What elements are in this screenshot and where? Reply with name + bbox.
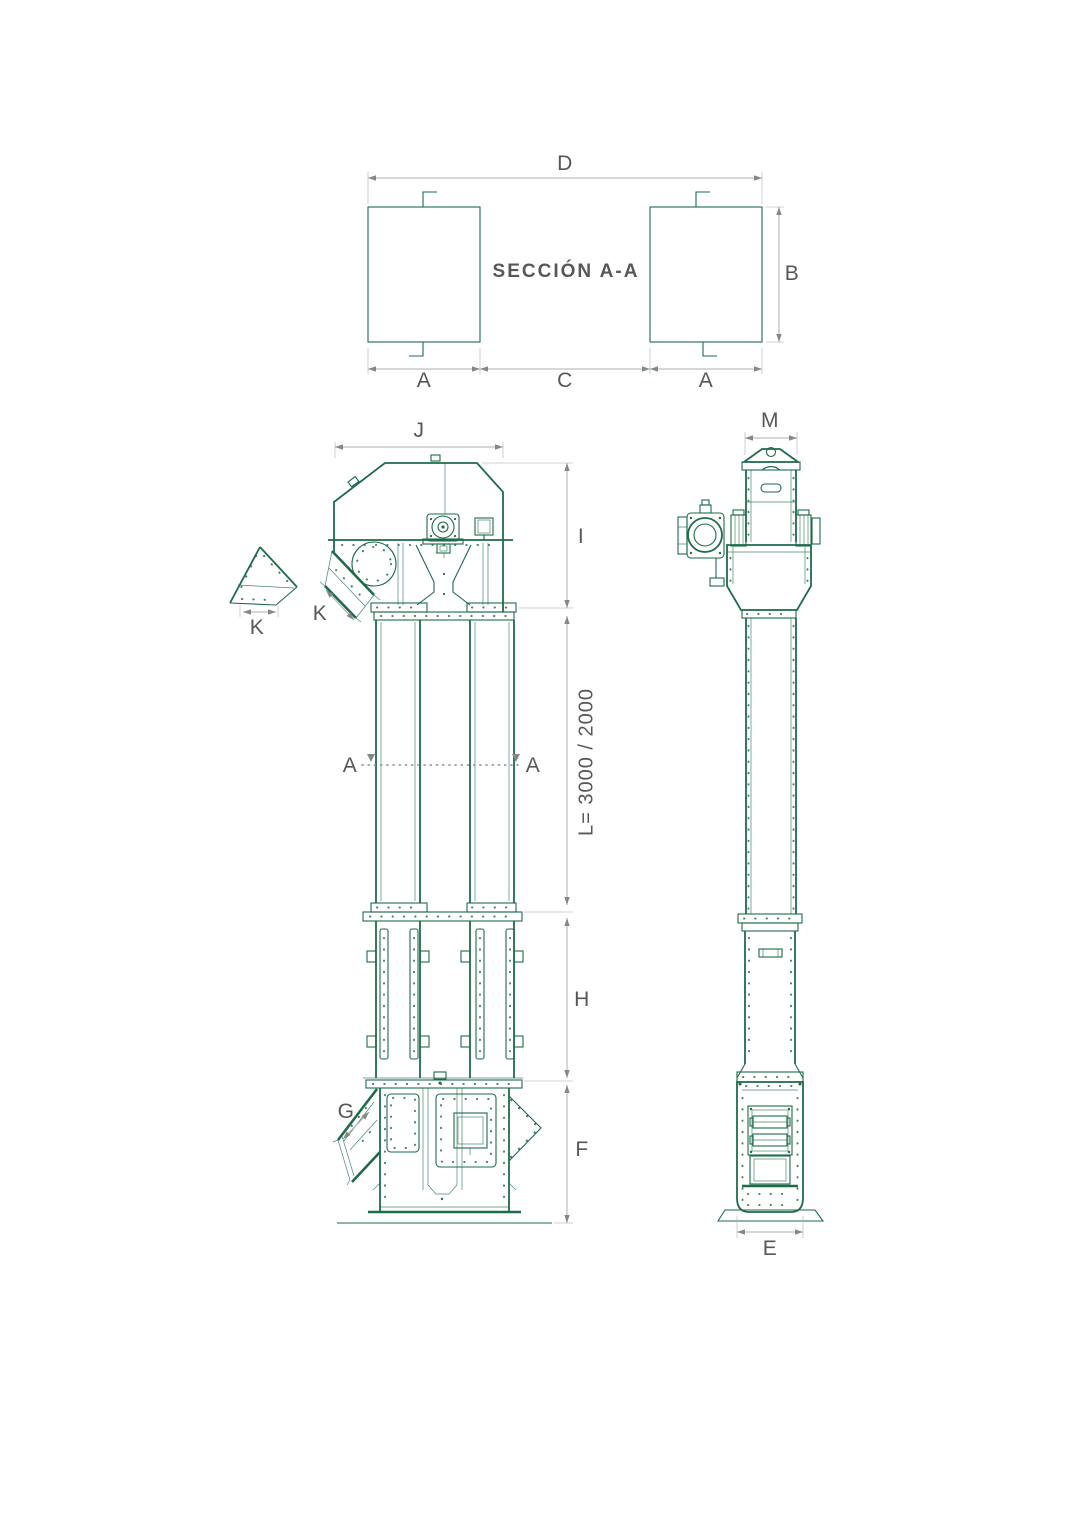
dim-label-e: E — [763, 1237, 778, 1261]
side-view — [678, 448, 823, 1222]
cut-label-a-right: A — [526, 754, 541, 778]
dim-label-m: M — [761, 409, 779, 433]
section-title: SECCIÓN A-A — [493, 261, 640, 283]
side-head — [727, 448, 820, 619]
front-trunking — [363, 620, 522, 921]
section-leg-left — [368, 192, 480, 356]
dim-label-b: B — [785, 262, 800, 286]
dim-label-g: G — [338, 1100, 355, 1124]
dim-label-d: D — [557, 152, 573, 176]
dim-label-k-detail: K — [250, 616, 265, 640]
front-boot — [337, 1072, 552, 1223]
front-intermediate-section — [367, 921, 523, 1078]
dim-label-j: J — [414, 419, 425, 443]
dim-label-a-left: A — [417, 369, 432, 393]
front-view — [230, 455, 552, 1223]
side-trunking — [737, 618, 803, 1086]
dim-label-h: H — [574, 988, 590, 1012]
cut-label-a-left: A — [343, 754, 358, 778]
section-cut-line — [362, 754, 520, 765]
dim-label-f: F — [575, 1138, 588, 1162]
front-head — [328, 455, 516, 620]
dimension-annotations — [326, 432, 803, 1238]
spout-detail-k — [230, 547, 297, 617]
technical-drawing-page: D B A C A SECCIÓN A-A J I K K A A L= 300… — [0, 0, 1080, 1528]
dim-label-k-spout: K — [313, 602, 328, 626]
dim-label-l: L= 3000 / 2000 — [576, 688, 599, 836]
side-drive-unit — [678, 500, 724, 586]
section-leg-right — [650, 192, 762, 356]
dim-label-a-right: A — [699, 369, 714, 393]
side-boot — [737, 1082, 803, 1212]
dim-label-i: I — [578, 525, 584, 549]
dim-label-c: C — [557, 369, 573, 393]
